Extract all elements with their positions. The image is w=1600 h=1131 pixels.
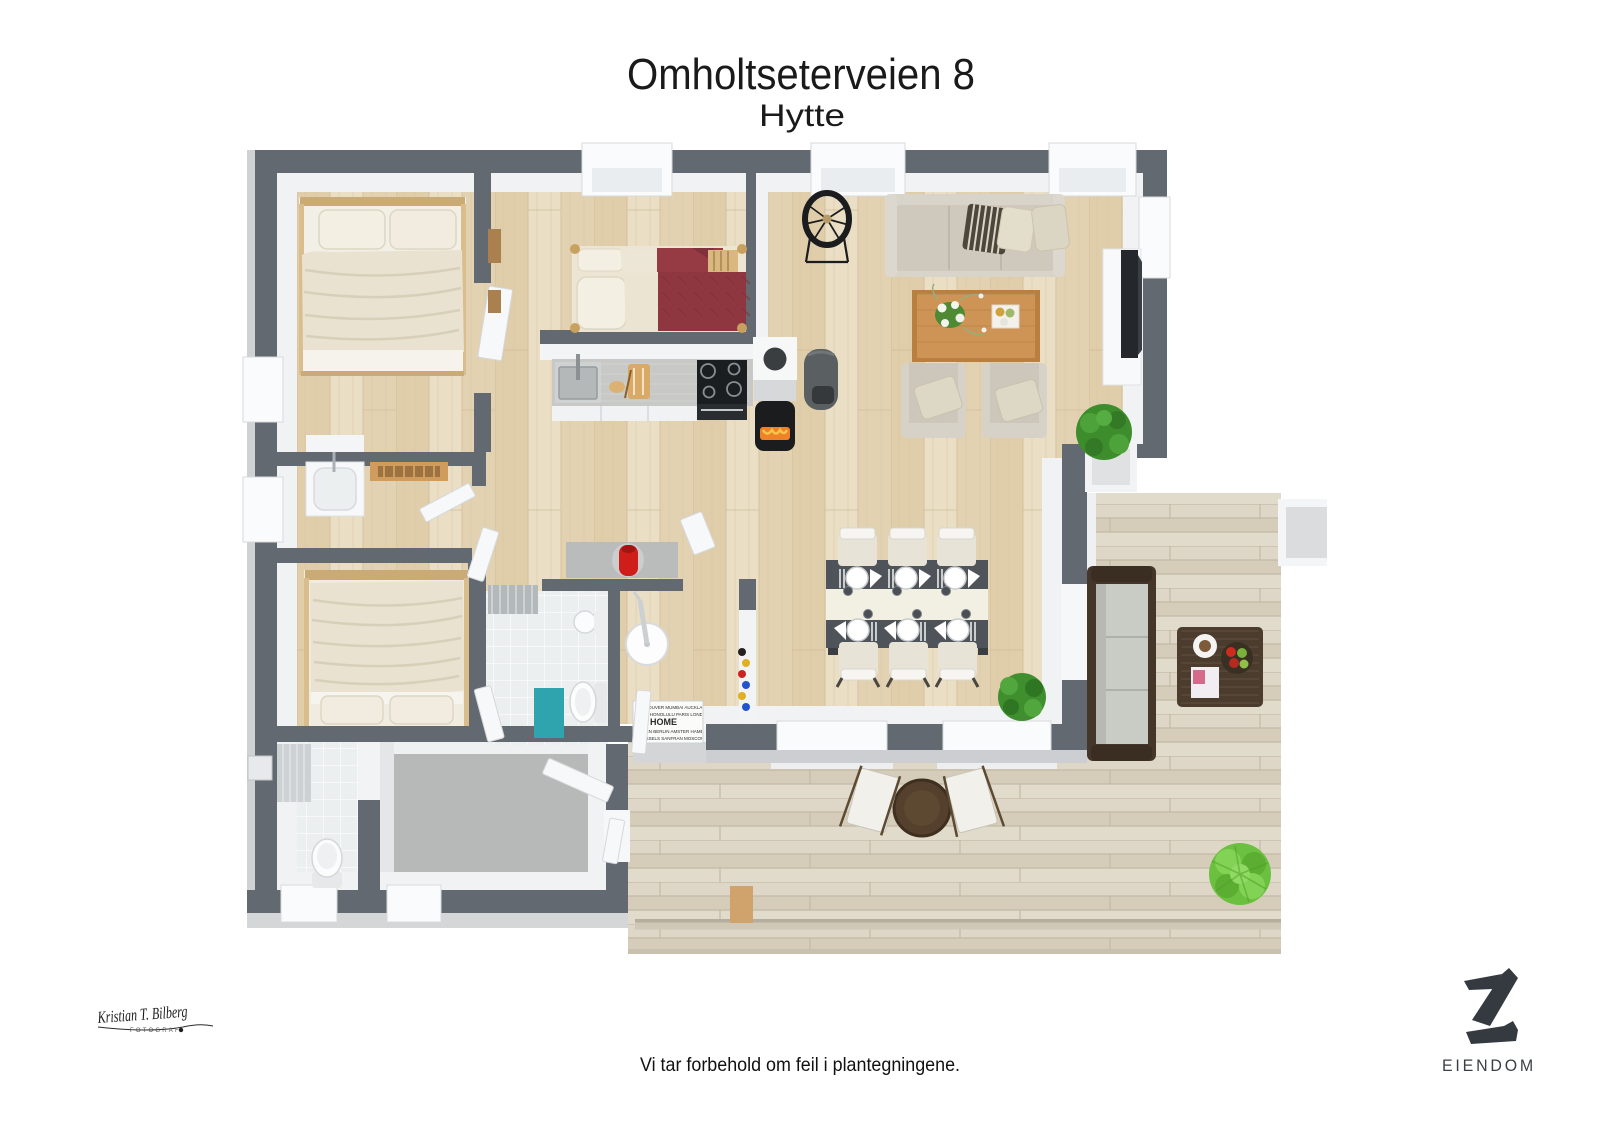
svg-text:FOTOGRAF: FOTOGRAF bbox=[130, 1028, 181, 1034]
svg-text:Omholtseterveien 8: Omholtseterveien 8 bbox=[627, 50, 975, 99]
svg-text:Vi tar forbehold om feil i pla: Vi tar forbehold om feil i plantegningen… bbox=[640, 1054, 960, 1076]
svg-text:Hytte: Hytte bbox=[759, 97, 845, 133]
svg-text:EIENDOM: EIENDOM bbox=[1442, 1056, 1536, 1075]
svg-text:HOME: HOME bbox=[650, 717, 677, 727]
